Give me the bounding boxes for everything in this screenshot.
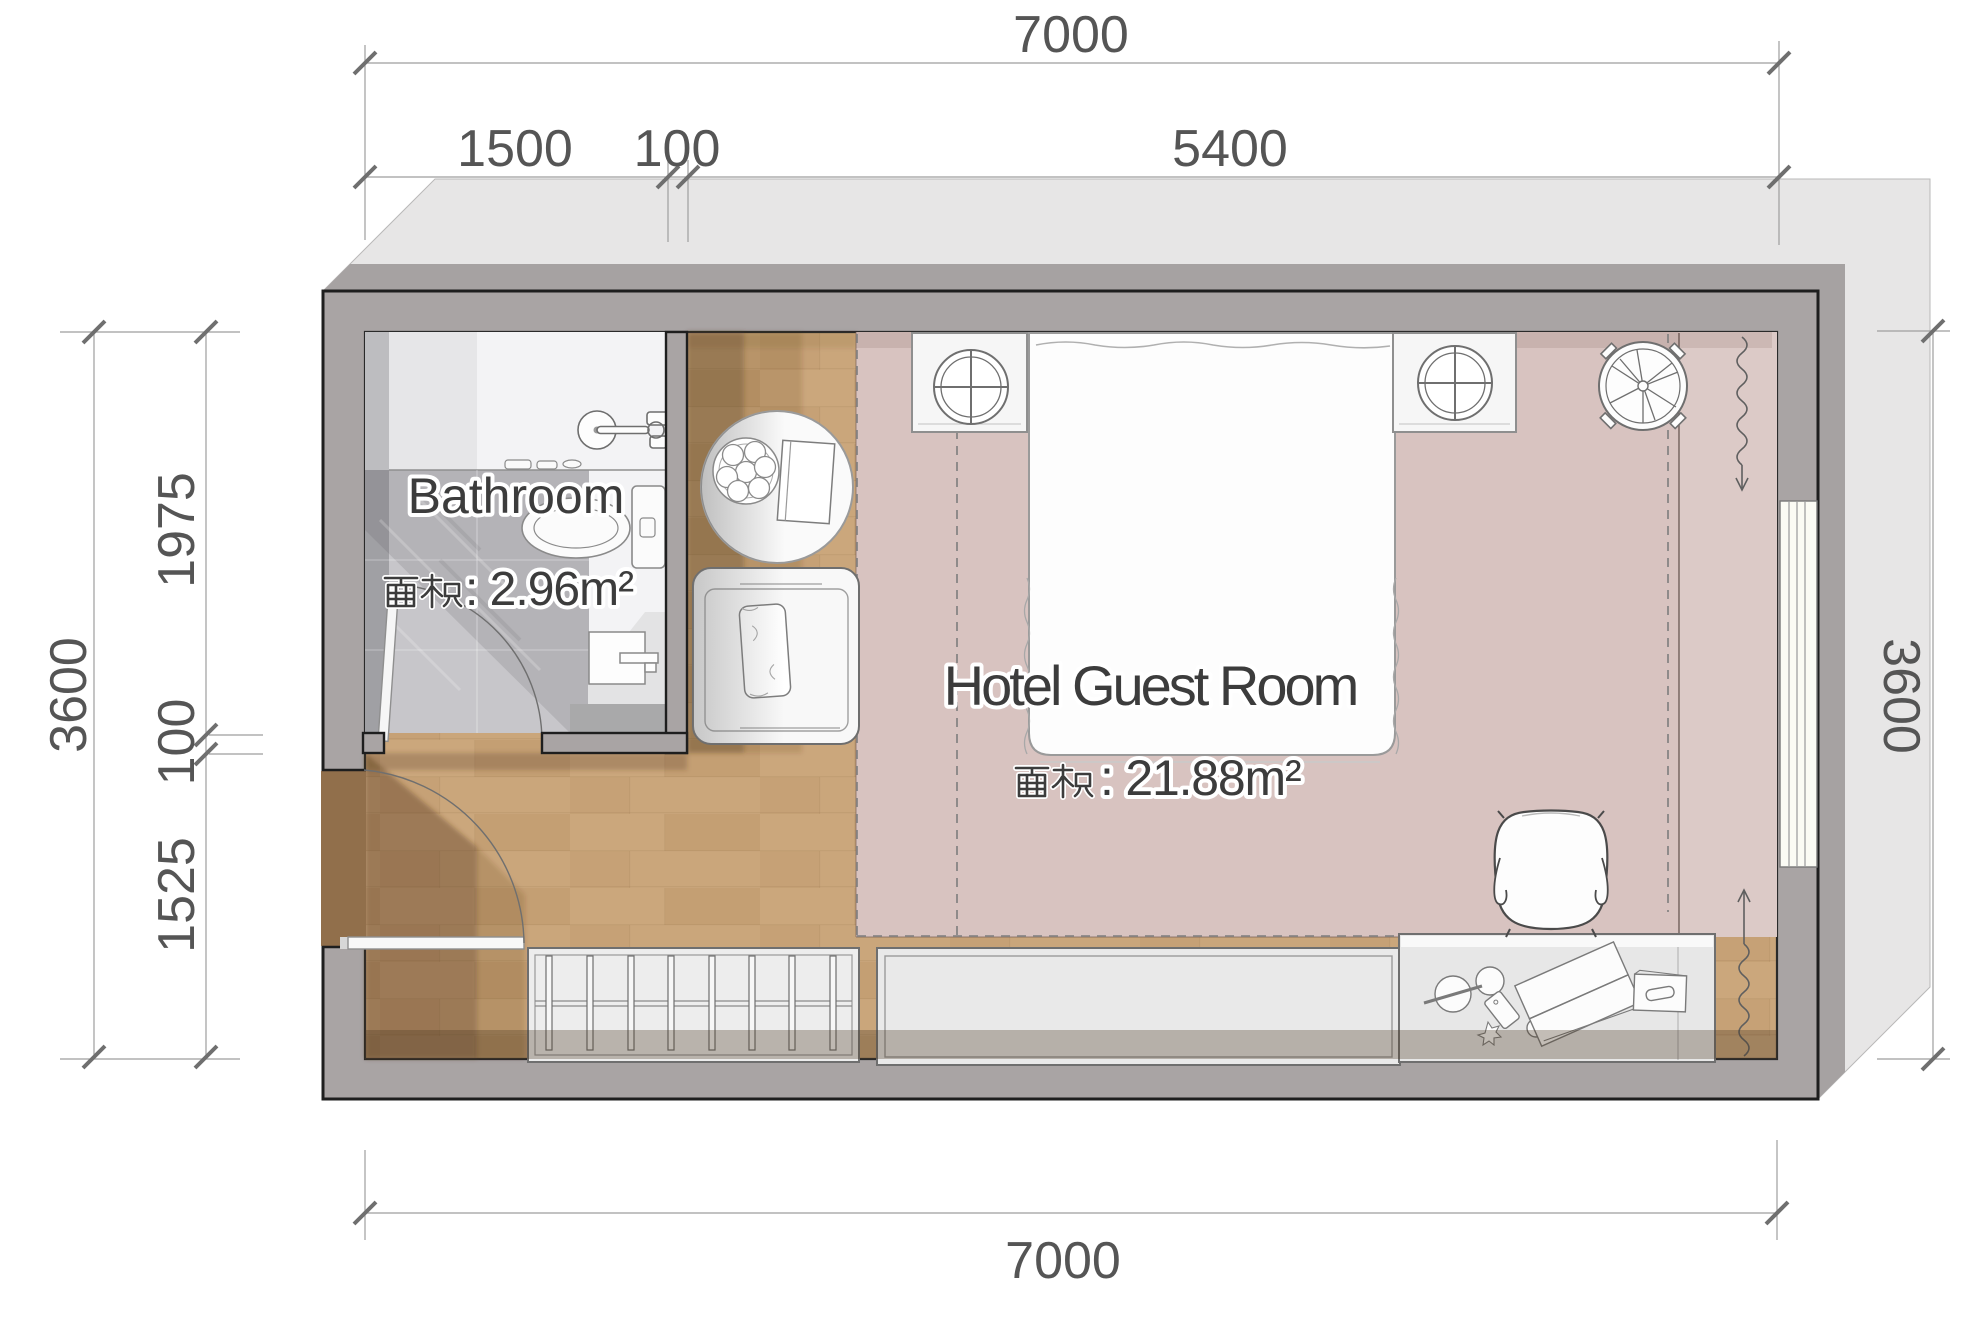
svg-text:100: 100 — [148, 699, 206, 786]
svg-text:: 21.88m²: : 21.88m² — [1100, 750, 1301, 806]
svg-text:3600: 3600 — [1872, 638, 1930, 754]
svg-text:: 2.96m²: : 2.96m² — [465, 563, 634, 616]
svg-text:Bathroom: Bathroom — [408, 468, 625, 524]
svg-text:Hotel Guest Room: Hotel Guest Room — [944, 654, 1357, 717]
svg-text:1525: 1525 — [148, 837, 206, 953]
svg-text:100: 100 — [634, 120, 721, 178]
svg-text:7000: 7000 — [1013, 6, 1129, 64]
svg-text:1500: 1500 — [457, 120, 573, 178]
svg-text:3600: 3600 — [40, 637, 98, 753]
svg-text:5400: 5400 — [1172, 120, 1288, 178]
svg-text:1975: 1975 — [148, 472, 206, 588]
svg-text:7000: 7000 — [1005, 1232, 1121, 1290]
